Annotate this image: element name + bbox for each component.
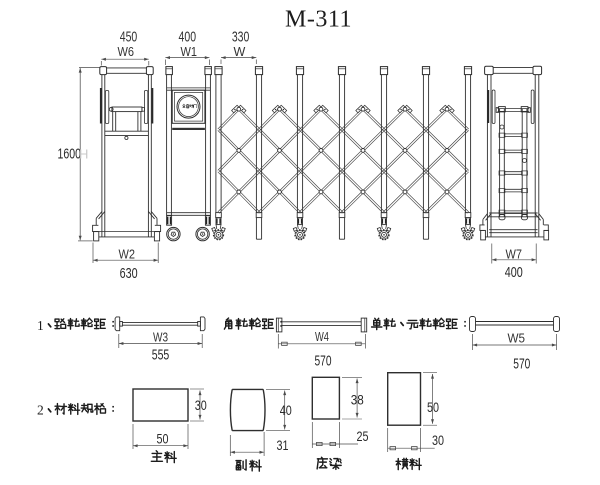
svg-text:2: 2 [37, 403, 44, 418]
svg-text:450: 450 [120, 29, 138, 46]
svg-text:M-311: M-311 [285, 7, 352, 33]
svg-text:400: 400 [179, 29, 197, 46]
svg-text:W7: W7 [506, 247, 523, 261]
svg-text:H: H [79, 147, 88, 162]
svg-text:50: 50 [427, 399, 439, 415]
svg-text:W1: W1 [181, 45, 198, 59]
svg-text:40: 40 [280, 402, 292, 418]
svg-text:330: 330 [232, 29, 250, 46]
svg-text:25: 25 [357, 428, 369, 444]
svg-text:630: 630 [120, 265, 138, 282]
svg-text:30: 30 [195, 397, 207, 413]
svg-text:30: 30 [432, 432, 444, 448]
svg-text:555: 555 [152, 346, 170, 363]
svg-text:W3: W3 [153, 331, 168, 345]
svg-text:W6: W6 [118, 45, 135, 59]
svg-text:1: 1 [37, 318, 44, 333]
svg-text:31: 31 [277, 437, 289, 453]
svg-text:570: 570 [315, 353, 332, 370]
svg-text:W: W [233, 45, 245, 59]
svg-text:50: 50 [157, 431, 169, 447]
svg-text:W5: W5 [507, 331, 525, 345]
svg-text:1600: 1600 [58, 146, 82, 163]
svg-text:W2: W2 [119, 248, 136, 262]
svg-text:W4: W4 [315, 330, 329, 344]
svg-text:400: 400 [505, 264, 523, 281]
svg-text:38: 38 [351, 391, 364, 407]
svg-text:570: 570 [513, 356, 530, 373]
